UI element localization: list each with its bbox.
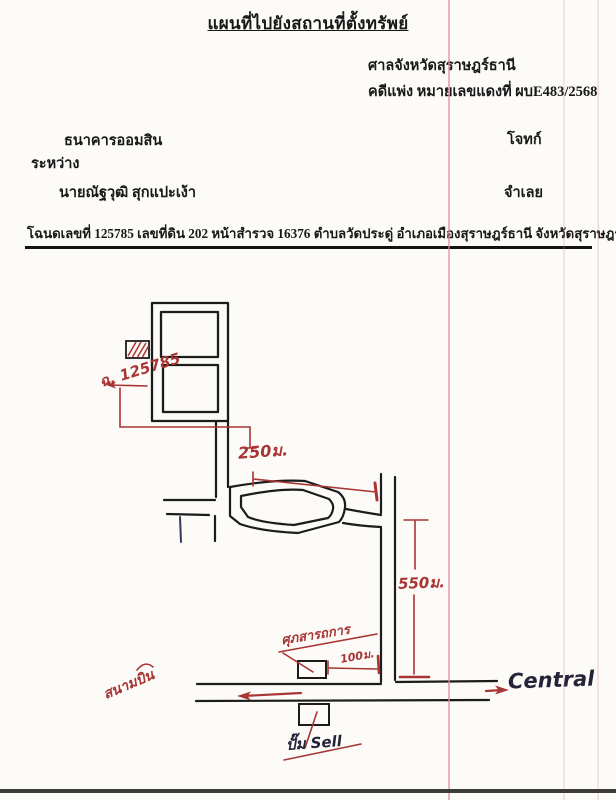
scan-bottom-edge: [0, 789, 616, 793]
gas-station-label: ปั๊ม Sell: [285, 729, 342, 757]
landmark-building: [298, 661, 326, 678]
blue-ink-stub: [180, 517, 181, 542]
dim-550-line: [404, 520, 428, 674]
landmark-buildings: [298, 661, 329, 725]
roads: [164, 421, 497, 701]
dim-100-end-tick: [378, 656, 379, 673]
distance-250m-label: 250ม.: [237, 438, 289, 466]
distance-550m-label: 550ม.: [398, 570, 446, 596]
central-direction-label: Central: [508, 667, 595, 694]
airport-arrow-line: [243, 693, 301, 696]
deed-leader-line: [109, 385, 256, 448]
scanned-document-page: แผนที่ไปยังสถานที่ตั้งทรัพย์ ศาลจังหวัดส…: [0, 0, 616, 800]
dim-250-end-tick: [375, 483, 377, 500]
